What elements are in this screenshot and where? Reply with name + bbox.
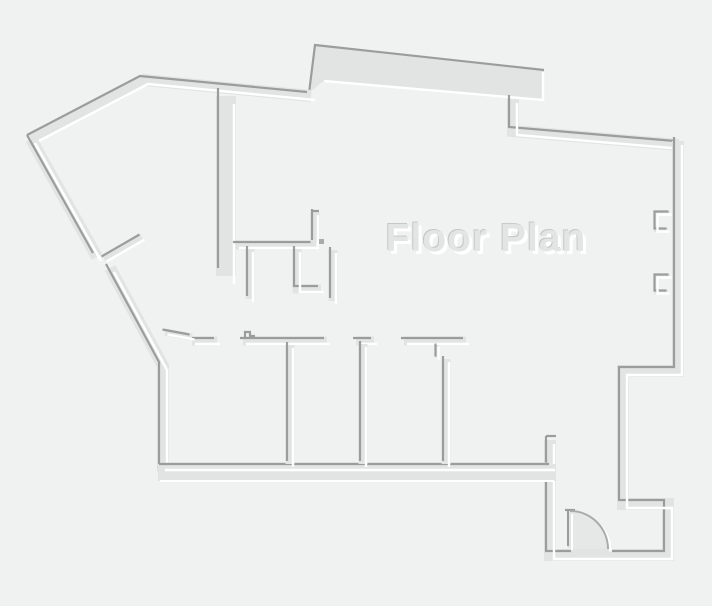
floor-plan-svg: Floor Plan Floor Plan Floor Plan — [0, 0, 712, 606]
corridor-wall — [218, 88, 234, 284]
entry-door — [568, 510, 612, 554]
floor-plan-canvas: Floor Plan Floor Plan Floor Plan — [0, 0, 712, 606]
floor-plan-title: Floor Plan — [386, 217, 587, 260]
outer-walls — [27, 76, 683, 559]
top-slab — [309, 45, 544, 101]
walls-layer — [27, 45, 683, 559]
room-bottom-wall — [159, 464, 555, 470]
wall-dot-mark — [319, 239, 324, 244]
